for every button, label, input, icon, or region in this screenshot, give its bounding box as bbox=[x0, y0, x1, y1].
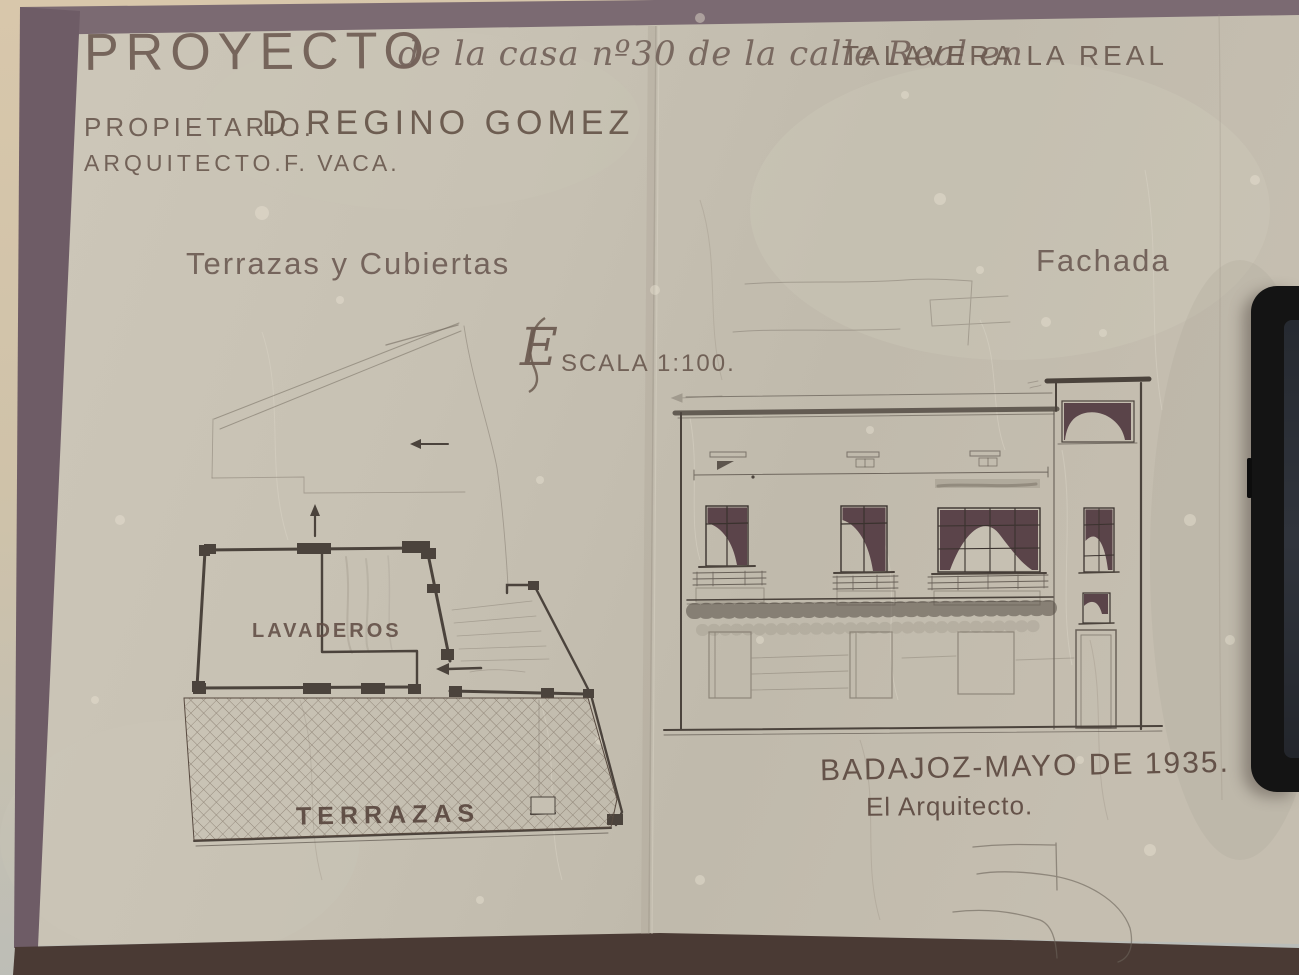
title-project-word: PROYECTO bbox=[84, 21, 431, 83]
signature-line: El Arquitecto. bbox=[866, 790, 1033, 822]
architect-name: F. VACA. bbox=[284, 150, 400, 177]
drawing-photo: PROYECTO de la casa nº30 de la calle Rea… bbox=[0, 0, 1299, 975]
owner-name: D.REGINO GOMEZ bbox=[262, 104, 634, 143]
facade-section-label: Fachada bbox=[1036, 243, 1171, 279]
phone-side-button bbox=[1247, 458, 1252, 498]
blueprint-artwork bbox=[0, 0, 1299, 975]
architect-label: ARQUITECTO. bbox=[84, 150, 285, 177]
smartphone bbox=[1251, 286, 1299, 792]
title-location: TALAVERA LA REAL bbox=[842, 40, 1168, 72]
scale-text: SCALA 1:100. bbox=[561, 350, 736, 378]
scale-initial: E bbox=[520, 322, 558, 374]
room-label-lavaderos: LAVADEROS bbox=[252, 620, 402, 643]
room-label-terrazas: TERRAZAS bbox=[296, 799, 481, 831]
scale-note: E SCALA 1:100. bbox=[520, 322, 736, 378]
phone-screen bbox=[1284, 320, 1299, 758]
plan-section-label: Terrazas y Cubiertas bbox=[186, 246, 510, 282]
